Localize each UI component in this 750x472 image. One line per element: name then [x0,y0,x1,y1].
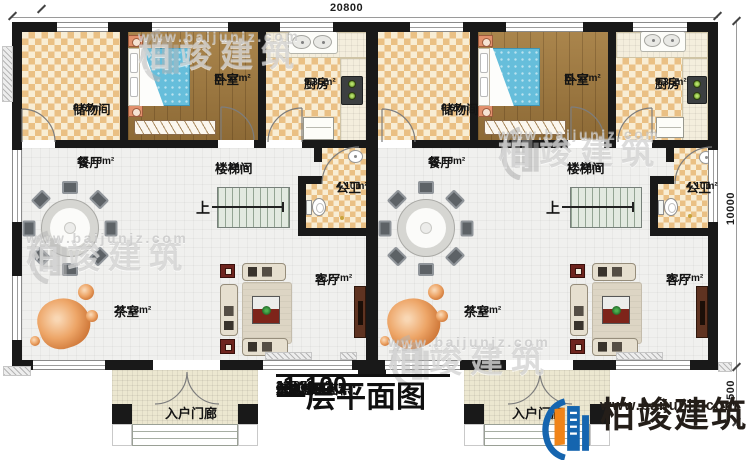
dimension-right-upper: 10000 [725,192,737,225]
top-dimension-line [12,17,718,18]
brand-logo-icon [540,398,592,460]
brand-site: www.baijunjz.com [600,398,738,414]
dimension-top: 20800 [330,2,363,14]
brand-logo: 柏竣建筑 www.baijunjz.com [540,398,748,460]
floor-plan: 20800 10000 1500 [0,0,750,472]
title-underline [276,374,450,377]
stair-up-label: 上 [196,198,210,218]
room-label-porch: 入户门廊 [165,403,217,422]
stair-up-label: 上 [546,198,560,218]
